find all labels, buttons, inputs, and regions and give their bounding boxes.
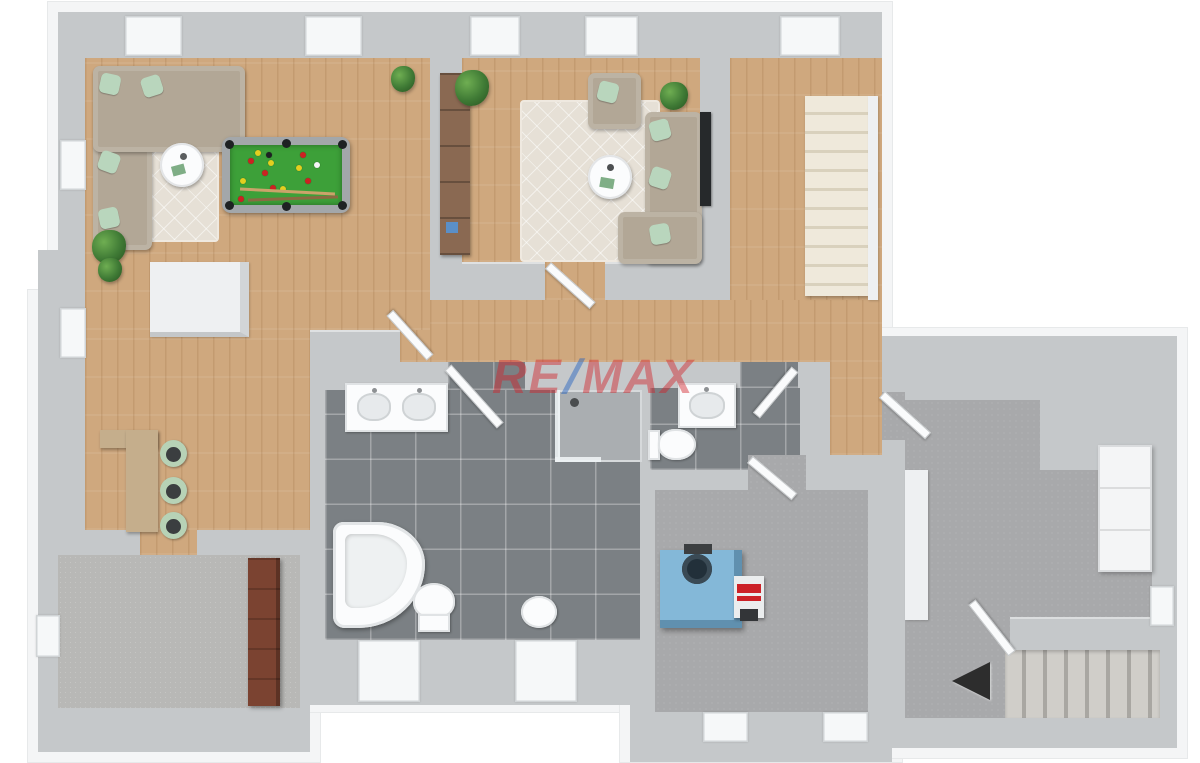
chimney-block	[150, 262, 249, 337]
sofa-pillow	[97, 206, 121, 230]
window	[1150, 586, 1174, 626]
window	[780, 16, 840, 56]
watermark-remax: RE/MAX	[492, 350, 695, 405]
wall-games-bathroom	[310, 330, 400, 362]
sink-basin	[402, 393, 436, 421]
tv-screen	[700, 112, 711, 206]
wall-living-corridor-right	[605, 262, 700, 300]
pool-ball-yellow	[240, 178, 246, 184]
wing-cabinet	[1098, 445, 1152, 572]
bathroom-vanity	[345, 383, 448, 432]
bathtub-basin	[345, 534, 407, 608]
window	[36, 615, 60, 657]
wall-bump-left	[38, 250, 78, 312]
sofa-pillow	[98, 72, 122, 96]
pool-ball-cue	[314, 162, 320, 168]
wall-wing-stairs	[1010, 617, 1160, 650]
bookshelf-decor	[446, 222, 458, 233]
bar-stool	[160, 477, 187, 504]
pool-pocket	[282, 139, 291, 148]
window	[125, 16, 182, 56]
window-bay	[358, 640, 420, 702]
coffee-table	[160, 143, 204, 187]
floor-plan: RE/MAX	[0, 0, 1200, 763]
burner-base	[740, 609, 758, 621]
wall-living-corridor-left	[462, 262, 545, 300]
boiler-tank	[660, 550, 742, 628]
sofa-pillow	[648, 222, 671, 245]
bar-stool	[160, 440, 187, 467]
burner-stripe	[737, 584, 761, 593]
window	[60, 140, 86, 190]
watermark-slash: /	[561, 350, 584, 405]
staircase-stringer	[868, 96, 878, 300]
pool-pocket	[282, 202, 291, 211]
pool-ball-yellow	[255, 150, 261, 156]
table-decor-cup	[180, 153, 187, 160]
watermark-text: RE	[492, 350, 563, 405]
wc-toilet	[658, 429, 696, 460]
bar-counter	[126, 430, 158, 532]
stool-seat	[166, 484, 181, 499]
bidet	[521, 596, 557, 628]
window	[60, 308, 86, 358]
sink-basin	[357, 393, 391, 421]
pool-pocket	[225, 140, 234, 149]
pool-ball-yellow	[268, 160, 274, 166]
window	[823, 712, 868, 742]
wardrobe	[248, 558, 280, 706]
faucet	[704, 387, 709, 392]
window	[585, 16, 638, 56]
table-decor-book	[171, 163, 186, 176]
faucet	[372, 388, 377, 393]
pool-ball-red	[305, 178, 311, 184]
pool-ball-red	[248, 158, 254, 164]
pool-ball-red	[262, 170, 268, 176]
bar-stool	[160, 512, 187, 539]
stool-seat	[166, 447, 181, 462]
floor-corridor-right	[830, 362, 882, 455]
stair-direction-arrow	[952, 662, 990, 700]
faucet	[417, 388, 422, 393]
shower-glass	[555, 457, 601, 462]
window	[703, 712, 748, 742]
boiler-cap	[682, 554, 712, 584]
toilet-tank	[418, 614, 450, 632]
pool-ball-red	[238, 196, 244, 202]
stool-seat	[166, 519, 181, 534]
window	[305, 16, 362, 56]
window-bay	[515, 640, 577, 702]
burner-stripe	[737, 596, 761, 601]
staircase-up	[805, 96, 868, 296]
pool-ball-yellow	[296, 165, 302, 171]
watermark-text: MAX	[582, 350, 695, 405]
wall-wing-interior	[905, 470, 928, 620]
pool-table	[222, 137, 350, 213]
coffee-table	[588, 155, 632, 199]
table-decor-cup	[607, 164, 614, 171]
pool-pocket	[338, 201, 347, 210]
staircase-down	[1005, 650, 1160, 718]
table-decor-book	[599, 177, 615, 189]
window	[470, 16, 520, 56]
pool-ball-red	[300, 152, 306, 158]
boiler-flue-cap	[684, 544, 712, 554]
pool-pocket	[225, 201, 234, 210]
burner-unit	[734, 576, 764, 618]
pool-pocket	[338, 140, 347, 149]
pool-ball-black	[266, 152, 272, 158]
